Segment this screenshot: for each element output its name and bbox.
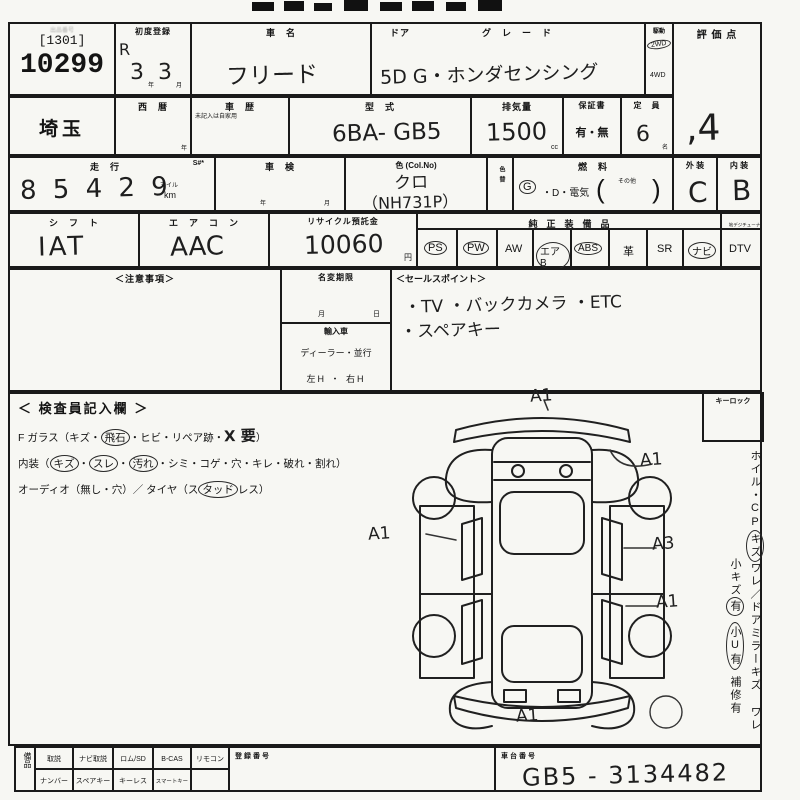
warranty-label: 保証書: [564, 100, 620, 111]
repair-yes-label: 補修有: [729, 676, 741, 715]
rom-sd-cell: ロム/SD: [112, 746, 154, 770]
warranty-cell: 保証書 有・無: [562, 96, 622, 156]
glass-stone-chip-circled: 飛石: [101, 429, 130, 446]
smart-key-cell: スマートキー: [152, 768, 192, 792]
notes-cell: ＜注意事項＞: [8, 268, 282, 392]
sep1: ・: [79, 458, 90, 470]
recycle-deposit-unit: 円: [404, 252, 412, 263]
interior-scratch-circled: キズ: [50, 455, 79, 472]
displacement-unit: cc: [551, 144, 558, 151]
audio-tire-options: オーディオ（無し・穴）／ タイヤ（ス: [18, 484, 198, 496]
shift-label: シ フ ト: [10, 216, 138, 229]
glass-paren-close: ）: [256, 432, 267, 444]
plate-cell: ナンバー: [34, 768, 74, 792]
wheel-crack-mirror-label: ワレ／ドアミラー: [749, 562, 761, 666]
equip-dtv-cell: DTV: [720, 228, 762, 268]
mileage-unit-mile: マイル: [160, 180, 178, 189]
color-cell: 色 (Col.No) クロ （NH731P）: [344, 156, 488, 212]
capacity-unit: 名: [662, 142, 668, 151]
fuel-label: 燃 料: [514, 160, 672, 173]
fuel-paren-close: ): [652, 174, 661, 205]
chassis-number-value: GB5 - 3134482: [522, 758, 730, 791]
inspector-line-glass: F ガラス（キズ・飛石・ヒビ・リペア跡・X 要）: [18, 425, 418, 446]
shaken-cell: 車 検 年 月: [214, 156, 346, 212]
color-change-cell: 色替: [486, 156, 514, 212]
car-name-label: 車 名: [192, 26, 370, 39]
damage-mark-rear-a1: A1: [515, 705, 539, 727]
shareki-cell: 車 歴 未記入は自家用: [190, 96, 290, 156]
studless-circled: タッド: [198, 481, 238, 498]
notes-label: ＜注意事項＞: [10, 272, 280, 285]
first-registration-month: 3: [158, 60, 173, 85]
score-label: 評 価 点: [674, 26, 760, 41]
drive-option-2wd: 2WD: [646, 38, 671, 50]
inspection-area: ＜ 検査員記入欄 ＞ F ガラス（キズ・飛石・ヒビ・リペア跡・X 要） 内装（キ…: [8, 392, 762, 746]
drive-option-4wd: 4WD: [650, 72, 666, 79]
model-code-label: 型 式: [290, 100, 470, 113]
wheel-mirror-notes: ホイル・CPキズワレ／ドアミラーキズ ワレ: [746, 450, 764, 742]
keylock-label: キーロック: [704, 396, 762, 406]
equip-abs: ABS: [574, 242, 602, 255]
lot-number: 10299: [10, 50, 114, 81]
damage-mark-right-a3: A3: [651, 533, 675, 555]
mileage-value: 8 5 4 2 9: [20, 172, 173, 206]
navi-manual-cell: ナビ取説: [72, 746, 114, 770]
name-change-cell: 名変期限 月 日: [280, 268, 392, 324]
fuel-cell: 燃 料 G ・D・電気 ( その他 ): [512, 156, 674, 212]
damage-mark-right-rear-a1: A1: [655, 591, 679, 613]
chassis-number-cell: 車台番号 GB5 - 3134482: [494, 746, 762, 792]
equip-sr: SR: [657, 243, 672, 255]
equip-dtv: DTV: [729, 243, 751, 255]
clipped-title-glyphs: [252, 0, 532, 14]
damage-mark-front-a1: A1: [529, 385, 553, 407]
remote-label: リモコン: [196, 756, 224, 763]
sales-points-line2: ・スペアキー: [400, 315, 501, 343]
inspector-line-interior: 内装（キズ・スレ・汚れ・シミ・コゲ・穴・キレ・破れ・割れ）: [18, 455, 418, 472]
inspector-header: ＜ 検査員記入欄 ＞: [18, 398, 418, 417]
color-change-label: 色替: [497, 166, 506, 186]
equip-aw-cell: AW: [496, 228, 534, 268]
lot-cell: 出品番号 [1301] 10299: [8, 22, 116, 96]
registration-number-cell: 登録番号: [228, 746, 496, 792]
equip-airbag-cell: エアB: [532, 228, 572, 268]
score-cell: 評 価 点 ,4: [672, 22, 762, 156]
manual-cell: 取説: [34, 746, 74, 770]
name-change-month-unit: 月: [318, 309, 325, 319]
tire-line-close: レス）: [238, 484, 270, 496]
recycle-deposit-cell: リサイクル預託金 10060 円: [268, 212, 418, 268]
seireki-cell: 西 暦 年: [114, 96, 192, 156]
accessories-side-label-cell: 備品: [14, 746, 36, 792]
mileage-s-label: S#*: [193, 160, 204, 167]
fuel-gasoline-circled: G: [519, 180, 536, 194]
door-grade-cell: ドア グ レ ー ド 5D G・ホンダセンシング: [370, 22, 646, 96]
remote-cell: リモコン: [190, 746, 230, 770]
small-scratch-yes-circled: 有: [726, 597, 744, 616]
import-car-label: 輸入車: [282, 326, 390, 337]
capacity-label: 定 員: [622, 100, 672, 111]
sales-points-label: ＜セールスポイント＞: [396, 272, 486, 285]
glass-repair-needed-hand: X 要: [224, 425, 256, 447]
interior-grade: B: [732, 174, 752, 207]
shift-cell: シ フ ト IAT: [8, 212, 140, 268]
wheel-scratch-circled: キズ: [746, 530, 764, 562]
aircon-cell: エ ア コ ン AAC: [138, 212, 270, 268]
door-grade-value: 5D G・ホンダセンシング: [380, 57, 599, 90]
auction-sheet: 出品番号 [1301] 10299 初度登録 R 3 年 3 月 車 名 フリー…: [0, 0, 800, 800]
registration-number-label: 登録番号: [235, 751, 271, 761]
sep2: ・: [118, 458, 129, 470]
import-car-cell: 輸入車 ディーラー・並行 左H ・ 右H: [280, 322, 392, 392]
mileage-unit-km: km: [164, 190, 176, 200]
equip-leather-cell: 革: [608, 228, 648, 268]
shaken-label: 車 検: [216, 160, 344, 173]
small-damage-notes: 小キズ有小U有補修有: [726, 558, 744, 738]
equip-ps: PS: [424, 241, 447, 255]
rom-sd-label: ロム/SD: [120, 756, 146, 763]
aircon-label: エ ア コ ン: [140, 216, 268, 229]
grade-label: グ レ ー ド: [482, 26, 552, 39]
mileage-label: 走 行: [90, 160, 120, 173]
bcas-label: B-CAS: [161, 756, 182, 763]
warranty-options: 有・無: [564, 124, 620, 140]
model-code-value: 6BA- GB5: [332, 119, 442, 148]
mileage-cell: 走 行 S#* 8 5 4 2 9 マイル km: [8, 156, 216, 212]
displacement-value: 1500: [486, 117, 548, 147]
door-label: ドア: [390, 26, 410, 39]
car-name-cell: 車 名 フリード: [190, 22, 372, 96]
shareki-note: 未記入は自家用: [195, 111, 237, 120]
displacement-cell: 排気量 1500 cc: [470, 96, 564, 156]
keyless-cell: キーレス: [112, 768, 154, 792]
name-change-day-unit: 日: [373, 309, 380, 319]
recycle-deposit-value: 10060: [304, 229, 384, 260]
score-value: ,4: [685, 108, 720, 150]
shift-value: IAT: [38, 231, 87, 262]
seireki-unit: 年: [181, 143, 187, 152]
interior-cell: 内 装 B: [716, 156, 762, 212]
capacity-value: 6: [636, 122, 651, 147]
damage-mark-right-front-a1: A1: [639, 449, 663, 471]
first-registration-cell: 初度登録 R 3 年 3 月: [114, 22, 192, 96]
seireki-label: 西 暦: [116, 100, 190, 113]
exterior-grade: C: [688, 176, 708, 210]
tuner-header-label: 地デジチューナー有: [729, 221, 762, 228]
equip-navi: ナビ: [688, 242, 716, 259]
drive-cell: 駆動 2WD 4WD: [644, 22, 674, 96]
equip-pw-cell: PW: [456, 228, 498, 268]
damage-mark-left-a1: A1: [367, 523, 391, 545]
empty-accessory-cell: [190, 768, 230, 792]
equip-leather: 革: [623, 243, 634, 259]
manual-label: 取説: [47, 756, 61, 763]
small-dent-yes-circled: 小U有: [726, 622, 744, 670]
small-scratch-label: 小キズ: [729, 558, 741, 597]
inspector-notes-block: ＜ 検査員記入欄 ＞ F ガラス（キズ・飛石・ヒビ・リペア跡・X 要） 内装（キ…: [18, 398, 418, 498]
region-value: 埼玉: [10, 114, 114, 141]
color-code: （NH731P）: [362, 188, 459, 215]
month-unit: 月: [176, 80, 182, 89]
chassis-number-label: 車台番号: [501, 751, 537, 761]
navi-manual-label: ナビ取説: [79, 756, 107, 763]
model-code-cell: 型 式 6BA- GB5: [288, 96, 472, 156]
recycle-deposit-label: リサイクル預託金: [270, 216, 416, 227]
equip-abs-cell: ABS: [570, 228, 610, 268]
equip-navi-cell: ナビ: [682, 228, 722, 268]
fuel-options: ・D・電気: [542, 184, 589, 199]
name-change-label: 名変期限: [282, 272, 390, 283]
sales-points-cell: ＜セールスポイント＞ ・TV ・バックカメラ ・ETC ・スペアキー: [390, 268, 762, 392]
interior-other-options: ・シミ・コゲ・穴・キレ・破れ・割れ）: [158, 458, 347, 470]
fuel-paren-open: (: [596, 174, 605, 205]
glass-damage-options2: ・ヒビ・リペア跡・: [130, 432, 225, 444]
first-registration-year: 3: [130, 60, 145, 85]
car-name-value: フリード: [226, 55, 319, 91]
interior-label: 内 装: [718, 160, 760, 171]
keyless-label: キーレス: [119, 778, 147, 785]
bcas-cell: B-CAS: [152, 746, 192, 770]
exterior-label: 外 装: [674, 160, 716, 171]
wheel-cp-label: ホイル・CP: [749, 450, 761, 530]
aircon-value: AAC: [170, 231, 225, 262]
fuel-other-label: その他: [618, 176, 636, 185]
accessories-side-label: 備品: [22, 752, 33, 768]
lot-tag: [1301]: [10, 33, 114, 48]
year-unit: 年: [148, 80, 154, 89]
equip-sr-cell: SR: [646, 228, 684, 268]
spare-key-label: スペアキー: [76, 778, 111, 785]
displacement-label: 排気量: [472, 100, 562, 113]
first-registration-era: R: [119, 40, 131, 59]
plate-label: ナンバー: [40, 778, 68, 785]
shaken-year-unit: 年: [260, 198, 266, 207]
shaken-month-unit: 月: [324, 198, 330, 207]
glass-damage-options: F ガラス（キズ・: [18, 432, 101, 444]
inspector-line-audio-tire: オーディオ（無し・穴）／ タイヤ（スタッドレス）: [18, 481, 418, 498]
import-handle-side: 左H ・ 右H: [282, 372, 390, 385]
interior-dirt-circled: 汚れ: [129, 455, 158, 472]
sales-points-line1: ・TV ・バックカメラ ・ETC: [404, 287, 622, 318]
equip-aw: AW: [505, 243, 522, 255]
smart-key-label: スマートキー: [156, 772, 188, 792]
drive-label: 駆動: [646, 26, 672, 35]
equip-pw: PW: [463, 241, 489, 255]
spare-key-cell: スペアキー: [72, 768, 114, 792]
exterior-cell: 外 装 C: [672, 156, 718, 212]
capacity-cell: 定 員 6 名: [620, 96, 674, 156]
equip-ps-cell: PS: [416, 228, 458, 268]
first-registration-label: 初度登録: [116, 26, 190, 37]
interior-line-open: 内装（: [18, 458, 50, 470]
import-dealer-parallel: ディーラー・並行: [282, 346, 390, 359]
mirror-scratch-crack: キズ ワレ: [749, 666, 761, 732]
keylock-box: キーロック: [702, 392, 764, 442]
equip-airbag: エアB: [536, 242, 570, 270]
interior-wear-circled: スレ: [89, 455, 118, 472]
region-cell: 埼玉: [8, 96, 116, 156]
